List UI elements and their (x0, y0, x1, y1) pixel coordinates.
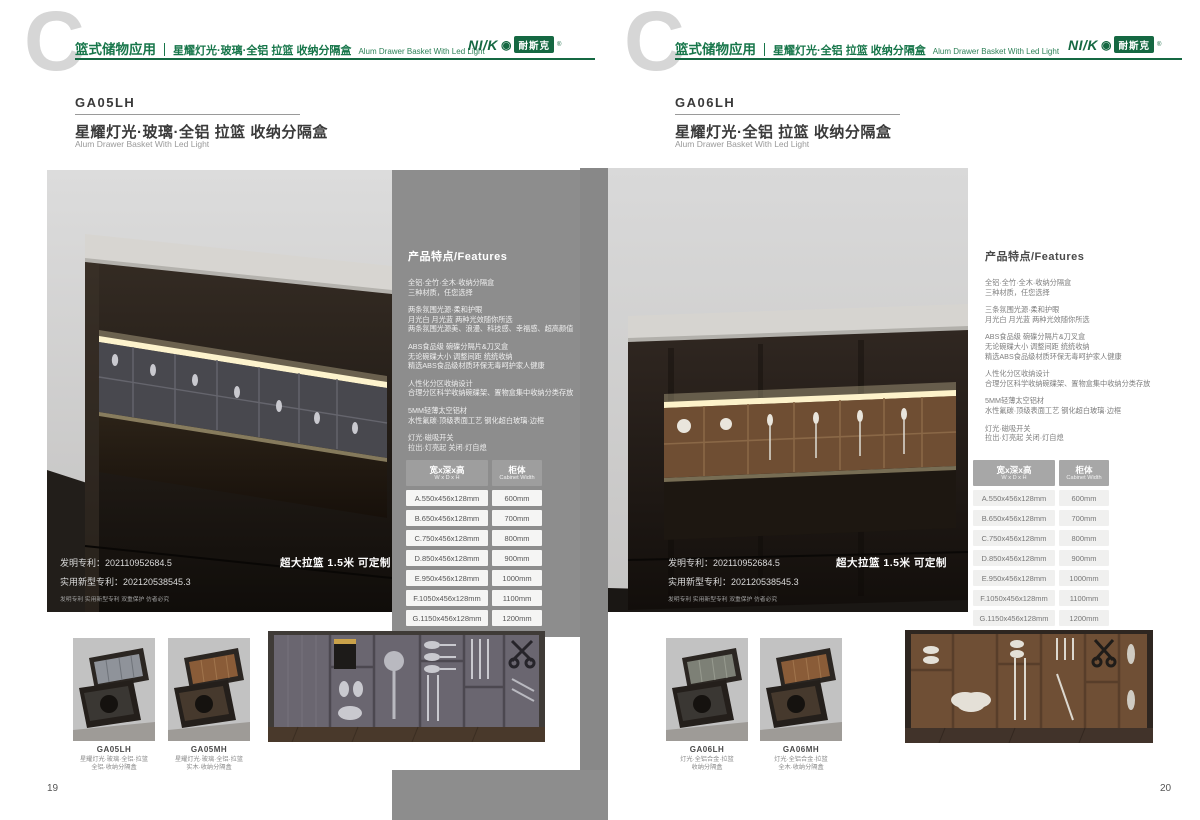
feature-line: 月光白 月光蓝 两种光效随你所选 (408, 315, 576, 325)
size-cell: B.650x456x128mm (406, 510, 488, 526)
size-table-row: D.850x456x128mm900mm (406, 550, 542, 566)
size-table-row: C.750x456x128mm800mm (973, 530, 1109, 546)
logo-registered-mark: ® (557, 42, 561, 48)
feature-line: 三种材质，任您选择 (408, 288, 576, 298)
thumbnail-code: GA06MH (751, 745, 851, 754)
feature-group: 5MM轻薄太空铝材水性氟碳·顶级表面工艺 钢化超白玻璃·边框 (985, 396, 1165, 415)
size-cell: C.750x456x128mm (973, 530, 1055, 546)
cabinet-width-cell: 900mm (1059, 550, 1109, 566)
size-table-body: A.550x456x128mm600mmB.650x456x128mm700mm… (973, 490, 1109, 626)
main-photo-illustration (47, 170, 392, 612)
size-cell: A.550x456x128mm (973, 490, 1055, 506)
size-cell: B.650x456x128mm (973, 510, 1055, 526)
feature-line: ABS食品级 碗碟分隔片&刀叉盒 (985, 332, 1165, 342)
cabinet-width-cell: 1100mm (1059, 590, 1109, 606)
feature-group: 5MM轻薄太空铝材水性氟碳·顶级表面工艺 钢化超白玻璃·边框 (408, 406, 576, 425)
size-cell: C.750x456x128mm (406, 530, 488, 546)
features-heading: 产品特点/Features (408, 248, 576, 264)
feature-line: 精选ABS食品级材质环保无毒呵护家人健康 (408, 361, 576, 371)
patent-line-1: 发明专利：202110952684.5 (60, 556, 191, 569)
product-code: GA06LH (675, 95, 735, 110)
cabinet-width-cell: 900mm (492, 550, 542, 566)
thumbnail-caption: GA06LH 灯光·全铝合金·拉篮 收纳分隔盒 (657, 745, 757, 772)
cabinet-width-cell: 600mm (1059, 490, 1109, 506)
feature-line: 月光白 月光蓝 两种光效随你所选 (985, 315, 1165, 325)
thumbnail-photo (760, 638, 842, 741)
cabinet-width-cell: 1000mm (492, 570, 542, 586)
thumbnail-caption: GA05LH 星耀灯光·玻璃·全铝·拉篮 全铝·收纳分隔盒 (64, 745, 164, 772)
size-cell: F.1050x456x128mm (406, 590, 488, 606)
size-table-row: A.550x456x128mm600mm (973, 490, 1109, 506)
header-title-en: Alum Drawer Basket With Led Light (358, 47, 484, 56)
logo-registered-mark: ® (1157, 42, 1161, 48)
header-rule (75, 58, 595, 60)
size-cell: A.550x456x128mm (406, 490, 488, 506)
size-table-row: G.1150x456x128mm1200mm (973, 610, 1109, 626)
cabinet-width-cell: 800mm (1059, 530, 1109, 546)
thumbnail-code: GA05LH (64, 745, 164, 754)
feature-line: 三种材质，任您选择 (985, 288, 1165, 298)
header-title: 星耀灯光·玻璃·全铝 拉篮 收纳分隔盒 (173, 45, 351, 57)
gray-footer-block (392, 770, 608, 820)
patent-line-3: 发明专利 实用新型专利 双重保护 仿者必究 (60, 594, 191, 603)
size-table-row: F.1050x456x128mm1100mm (406, 590, 542, 606)
cabinet-col-header: 柜体 Cabinet Width (492, 460, 542, 486)
thumbnail-caption: GA06MH 灯光·全铝合金·拉篮 全木·收纳分隔盒 (751, 745, 851, 772)
size-col-header: 宽x深x高 W x D x H (973, 460, 1055, 486)
logo-ring-icon: ◉ (1101, 38, 1111, 52)
logo-cn-badge: 耐斯克 (1114, 36, 1154, 53)
feature-group: 全铝·全竹·全木·收纳分隔盒三种材质，任您选择 (985, 278, 1165, 297)
size-cell: F.1050x456x128mm (973, 590, 1055, 606)
page-number: 20 (1160, 783, 1171, 794)
feature-line: 两条氛围光源·柔和护眼 (408, 305, 576, 315)
feature-line: 无论碗碟大小 调整间距 统统收纳 (408, 352, 576, 362)
logo-cn-badge: 耐斯克 (514, 36, 554, 53)
feature-group: 灯光·磁吸开关拉出·灯亮起 关闭·灯自熄 (985, 424, 1165, 443)
features-heading: 产品特点/Features (985, 248, 1165, 264)
features-list: 全铝·全竹·全木·收纳分隔盒三种材质，任您选择三条氛围光源·柔和护眼月光白 月光… (985, 278, 1165, 443)
feature-line: 无论碗碟大小 调整间距 统统收纳 (985, 342, 1165, 352)
cabinet-width-cell: 700mm (1059, 510, 1109, 526)
header-divider (764, 43, 765, 56)
size-cell: G.1150x456x128mm (406, 610, 488, 626)
size-table-row: D.850x456x128mm900mm (973, 550, 1109, 566)
feature-line: 两条氛围光源美、浪漫、科技感、幸福感、超高颜值 (408, 324, 576, 334)
product-code-rule (75, 114, 300, 115)
feature-line: ABS食品级 碗碟分隔片&刀叉盒 (408, 342, 576, 352)
logo-latin-text: NI/K (468, 37, 498, 53)
feature-line: 拉出·灯亮起 关闭·灯自熄 (985, 433, 1165, 443)
size-table-row: E.950x456x128mm1000mm (406, 570, 542, 586)
thumbnail-photo (666, 638, 748, 741)
main-photo-illustration (608, 168, 968, 612)
product-name-en: Alum Drawer Basket With Led Light (75, 139, 209, 149)
thumbnail-photo-wide (905, 630, 1153, 743)
patent-line-1: 发明专利：202110952684.5 (668, 556, 799, 569)
logo-latin-text: NI/K (1068, 37, 1098, 53)
size-cell: G.1150x456x128mm (973, 610, 1055, 626)
feature-group: 三条氛围光源·柔和护眼月光白 月光蓝 两种光效随你所选 (985, 305, 1165, 324)
features-list: 全铝·全竹·全木·收纳分隔盒三种材质，任您选择两条氛围光源·柔和护眼月光白 月光… (408, 278, 576, 452)
oversize-banner: 超大拉篮 1.5米 可定制 (836, 555, 947, 570)
feature-line: 拉出·灯亮起 关闭·灯自熄 (408, 443, 576, 453)
features-block: 产品特点/Features 全铝·全竹·全木·收纳分隔盒三种材质，任您选择三条氛… (985, 248, 1165, 451)
gray-strip (580, 168, 608, 820)
c-watermark-icon: C (24, 6, 81, 77)
size-table: 宽x深x高 W x D x H 柜体 Cabinet Width A.550x4… (406, 460, 542, 626)
feature-group: 灯光·磁吸开关拉出·灯亮起 关闭·灯自熄 (408, 433, 576, 452)
nisko-logo: NI/K◉耐斯克® (468, 36, 561, 53)
cabinet-width-cell: 700mm (492, 510, 542, 526)
oversize-banner: 超大拉篮 1.5米 可定制 (280, 555, 391, 570)
feature-group: 全铝·全竹·全木·收纳分隔盒三种材质，任您选择 (408, 278, 576, 297)
patent-line-2: 实用新型专利：202120538545.3 (60, 575, 191, 588)
cabinet-width-cell: 800mm (492, 530, 542, 546)
size-table-row: G.1150x456x128mm1200mm (406, 610, 542, 626)
thumbnail-photo (73, 638, 155, 741)
cabinet-width-cell: 1000mm (1059, 570, 1109, 586)
thumbnail-photo (168, 638, 250, 741)
feature-line: 灯光·磁吸开关 (985, 424, 1165, 434)
size-cell: D.850x456x128mm (973, 550, 1055, 566)
size-table-row: A.550x456x128mm600mm (406, 490, 542, 506)
size-table-row: B.650x456x128mm700mm (973, 510, 1109, 526)
product-code: GA05LH (75, 95, 135, 110)
nisko-logo: NI/K◉耐斯克® (1068, 36, 1161, 53)
patent-line-2: 实用新型专利：202120538545.3 (668, 575, 799, 588)
c-watermark-icon: C (624, 6, 681, 77)
header-title: 星耀灯光·全铝 拉篮 收纳分隔盒 (773, 45, 926, 57)
size-table-body: A.550x456x128mm600mmB.650x456x128mm700mm… (406, 490, 542, 626)
feature-line: 5MM轻薄太空铝材 (408, 406, 576, 416)
feature-line: 5MM轻薄太空铝材 (985, 396, 1165, 406)
feature-line: 灯光·磁吸开关 (408, 433, 576, 443)
feature-line: 全铝·全竹·全木·收纳分隔盒 (408, 278, 576, 288)
cabinet-width-cell: 600mm (492, 490, 542, 506)
feature-line: 精选ABS食品级材质环保无毒呵护家人健康 (985, 352, 1165, 362)
feature-group: ABS食品级 碗碟分隔片&刀叉盒无论碗碟大小 调整间距 统统收纳精选ABS食品级… (408, 342, 576, 371)
feature-line: 全铝·全竹·全木·收纳分隔盒 (985, 278, 1165, 288)
catalog-spread: C 篮式储物应用星耀灯光·玻璃·全铝 拉篮 收纳分隔盒Alum Drawer B… (0, 0, 1200, 820)
header-category: 篮式储物应用 (675, 42, 756, 57)
patent-info: 发明专利：202110952684.5 实用新型专利：202120538545.… (60, 556, 191, 603)
feature-line: 人性化分区收纳设计 (408, 379, 576, 389)
size-table-header: 宽x深x高 W x D x H 柜体 Cabinet Width (973, 460, 1109, 486)
header-title-en: Alum Drawer Basket With Led Light (933, 47, 1059, 56)
size-cell: D.850x456x128mm (406, 550, 488, 566)
thumbnail-photo-wide (268, 631, 545, 742)
feature-line: 三条氛围光源·柔和护眼 (985, 305, 1165, 315)
header-category: 篮式储物应用 (75, 42, 156, 57)
thumbnail-caption: GA05MH 星耀灯光·玻璃·全铝·拉篮 实木·收纳分隔盒 (159, 745, 259, 772)
feature-line: 合理分区科学收纳碗碟架、置物盒集中收纳分类存放 (985, 379, 1165, 389)
main-photo (608, 168, 968, 612)
logo-ring-icon: ◉ (501, 38, 511, 52)
cabinet-col-header: 柜体 Cabinet Width (1059, 460, 1109, 486)
feature-line: 水性氟碳·顶级表面工艺 钢化超白玻璃·边框 (408, 416, 576, 426)
patent-line-3: 发明专利 实用新型专利 双重保护 仿者必究 (668, 594, 799, 603)
feature-line: 水性氟碳·顶级表面工艺 钢化超白玻璃·边框 (985, 406, 1165, 416)
patent-info: 发明专利：202110952684.5 实用新型专利：202120538545.… (668, 556, 799, 603)
size-table-row: F.1050x456x128mm1100mm (973, 590, 1109, 606)
thumbnail-code: GA05MH (159, 745, 259, 754)
features-block: 产品特点/Features 全铝·全竹·全木·收纳分隔盒三种材质，任您选择两条氛… (408, 248, 576, 460)
cabinet-width-cell: 1100mm (492, 590, 542, 606)
size-table-header: 宽x深x高 W x D x H 柜体 Cabinet Width (406, 460, 542, 486)
size-table-row: E.950x456x128mm1000mm (973, 570, 1109, 586)
cabinet-width-cell: 1200mm (492, 610, 542, 626)
cabinet-width-cell: 1200mm (1059, 610, 1109, 626)
product-code-rule (675, 114, 900, 115)
feature-line: 人性化分区收纳设计 (985, 369, 1165, 379)
page-number: 19 (47, 783, 58, 794)
feature-group: ABS食品级 碗碟分隔片&刀叉盒无论碗碟大小 调整间距 统统收纳精选ABS食品级… (985, 332, 1165, 361)
feature-group: 两条氛围光源·柔和护眼月光白 月光蓝 两种光效随你所选两条氛围光源美、浪漫、科技… (408, 305, 576, 334)
header-divider (164, 43, 165, 56)
thumbnail-code: GA06LH (657, 745, 757, 754)
feature-group: 人性化分区收纳设计合理分区科学收纳碗碟架、置物盒集中收纳分类存放 (985, 369, 1165, 388)
page-header-left: 篮式储物应用星耀灯光·玻璃·全铝 拉篮 收纳分隔盒Alum Drawer Bas… (75, 38, 485, 59)
main-photo (47, 170, 392, 612)
page-header-right: 篮式储物应用星耀灯光·全铝 拉篮 收纳分隔盒Alum Drawer Basket… (675, 38, 1059, 59)
header-rule (675, 58, 1182, 60)
feature-group: 人性化分区收纳设计合理分区科学收纳碗碟架、置物盒集中收纳分类存放 (408, 379, 576, 398)
feature-line: 合理分区科学收纳碗碟架、置物盒集中收纳分类存放 (408, 388, 576, 398)
product-name-en: Alum Drawer Basket With Led Light (675, 139, 809, 149)
size-table-row: B.650x456x128mm700mm (406, 510, 542, 526)
size-cell: E.950x456x128mm (406, 570, 488, 586)
size-cell: E.950x456x128mm (973, 570, 1055, 586)
size-col-header: 宽x深x高 W x D x H (406, 460, 488, 486)
size-table-row: C.750x456x128mm800mm (406, 530, 542, 546)
size-table: 宽x深x高 W x D x H 柜体 Cabinet Width A.550x4… (973, 460, 1109, 626)
